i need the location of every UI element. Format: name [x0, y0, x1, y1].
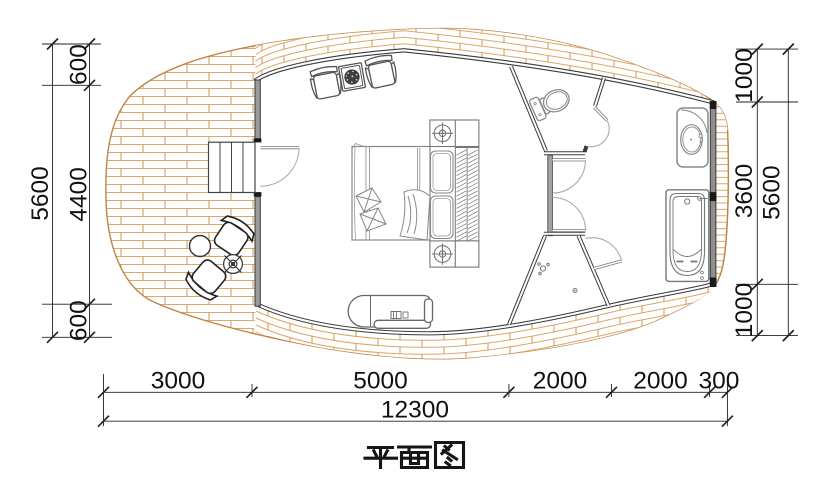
svg-text:5600: 5600	[27, 166, 54, 221]
svg-text:600: 600	[66, 44, 93, 85]
svg-text:12300: 12300	[381, 397, 449, 424]
svg-text:1000: 1000	[731, 283, 758, 338]
svg-text:4400: 4400	[66, 167, 93, 222]
svg-text:2000: 2000	[633, 368, 688, 395]
svg-text:3600: 3600	[731, 164, 758, 219]
svg-text:3000: 3000	[151, 368, 206, 395]
svg-text:5000: 5000	[353, 368, 408, 395]
svg-text:2000: 2000	[533, 368, 588, 395]
svg-text:300: 300	[699, 368, 740, 395]
svg-text:600: 600	[66, 300, 93, 341]
svg-text:5600: 5600	[759, 165, 786, 220]
svg-text:1000: 1000	[731, 48, 758, 103]
